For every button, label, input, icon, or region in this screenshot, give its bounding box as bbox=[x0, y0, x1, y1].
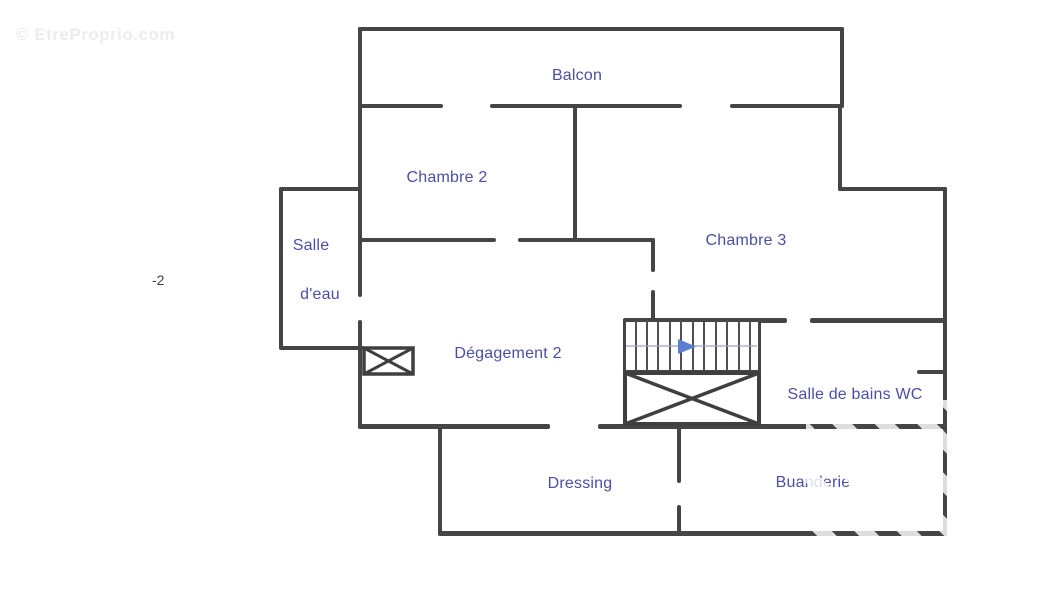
room-label-dressing: Dressing bbox=[548, 475, 613, 493]
wall-chambre2-bottom-right bbox=[518, 238, 655, 242]
stairs-and-shafts-overlay bbox=[0, 0, 1060, 590]
room-label-salledebains: Salle de bains WC bbox=[787, 386, 922, 404]
room-label-salledeau-1: Salle bbox=[293, 237, 330, 255]
wall-bathroom-stub bbox=[917, 370, 945, 374]
wall-bathroom-top bbox=[810, 318, 947, 323]
wall-mid-bottom-left bbox=[358, 424, 550, 429]
wall-balcony-right bbox=[840, 27, 844, 108]
wall-chambre2-bottom-left bbox=[360, 238, 496, 242]
room-label-chambre2: Chambre 2 bbox=[407, 169, 488, 187]
wall-right-outer bbox=[943, 187, 947, 536]
wall-stair-top bbox=[623, 318, 787, 323]
wall-dressing-left bbox=[438, 424, 442, 536]
stair-treads bbox=[636, 321, 750, 371]
room-label-degagement: Dégagement 2 bbox=[454, 345, 561, 363]
wall-balcony-left bbox=[358, 27, 362, 108]
wall-facade-center-segment bbox=[490, 104, 682, 108]
floor-level-label: -2 bbox=[152, 272, 164, 288]
wall-chambre3-top-right bbox=[838, 187, 947, 191]
wall-degagement-chambre3-upper bbox=[651, 238, 655, 272]
wall-degagement-chambre3-lower bbox=[651, 290, 655, 320]
room-label-chambre3: Chambre 3 bbox=[706, 232, 787, 250]
wall-bottom-outer bbox=[438, 531, 947, 536]
floorplan-viewer: © EtreProprio.com -2 bbox=[0, 0, 1060, 590]
wall-salledeau-bottom bbox=[279, 346, 364, 350]
stair-direction-arrow-icon bbox=[678, 339, 696, 354]
stair-void-crossed-box bbox=[625, 373, 759, 424]
wall-balcony-top bbox=[358, 27, 844, 31]
site-watermark-text: © EtreProprio.com bbox=[16, 25, 175, 45]
wall-left-lower bbox=[358, 320, 362, 428]
wall-facade-left-segment bbox=[358, 104, 443, 108]
room-label-buanderie: Buanderie bbox=[776, 474, 851, 492]
wall-facade-right-segment bbox=[730, 104, 844, 108]
wall-chambre2-chambre3-divider bbox=[573, 104, 577, 242]
room-label-salledeau-2: d'eau bbox=[300, 286, 340, 304]
wall-mid-bottom-right bbox=[598, 424, 947, 429]
wall-dressing-buanderie-lower bbox=[677, 505, 681, 535]
room-label-balcon: Balcon bbox=[552, 67, 602, 85]
wall-salledeau-top bbox=[279, 187, 362, 191]
duct-crossed-box bbox=[364, 348, 413, 374]
wall-salledeau-left bbox=[279, 187, 283, 350]
wall-dressing-buanderie-upper bbox=[677, 427, 681, 483]
wall-left-upper bbox=[358, 104, 362, 297]
staircase bbox=[625, 321, 760, 372]
wall-chambre3-right-upper bbox=[838, 104, 842, 191]
